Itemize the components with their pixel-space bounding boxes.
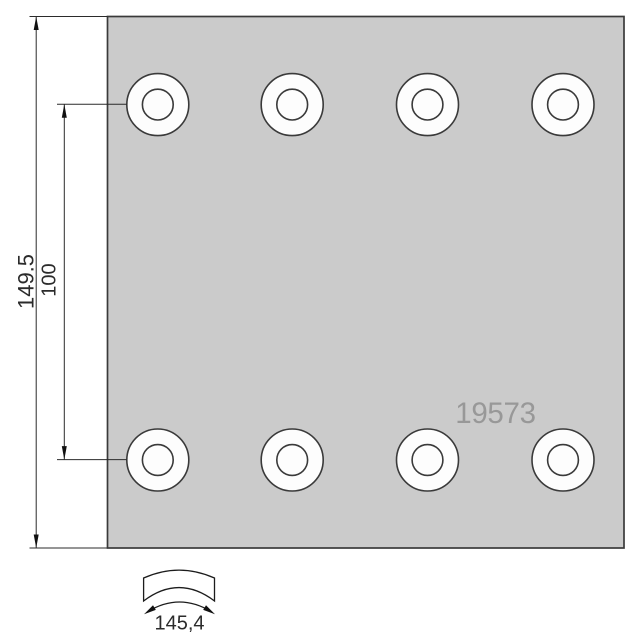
svg-text:149.5: 149.5 xyxy=(14,254,39,309)
svg-text:100: 100 xyxy=(39,263,61,296)
svg-text:19573: 19573 xyxy=(455,397,536,430)
svg-text:145,4: 145,4 xyxy=(154,613,204,635)
